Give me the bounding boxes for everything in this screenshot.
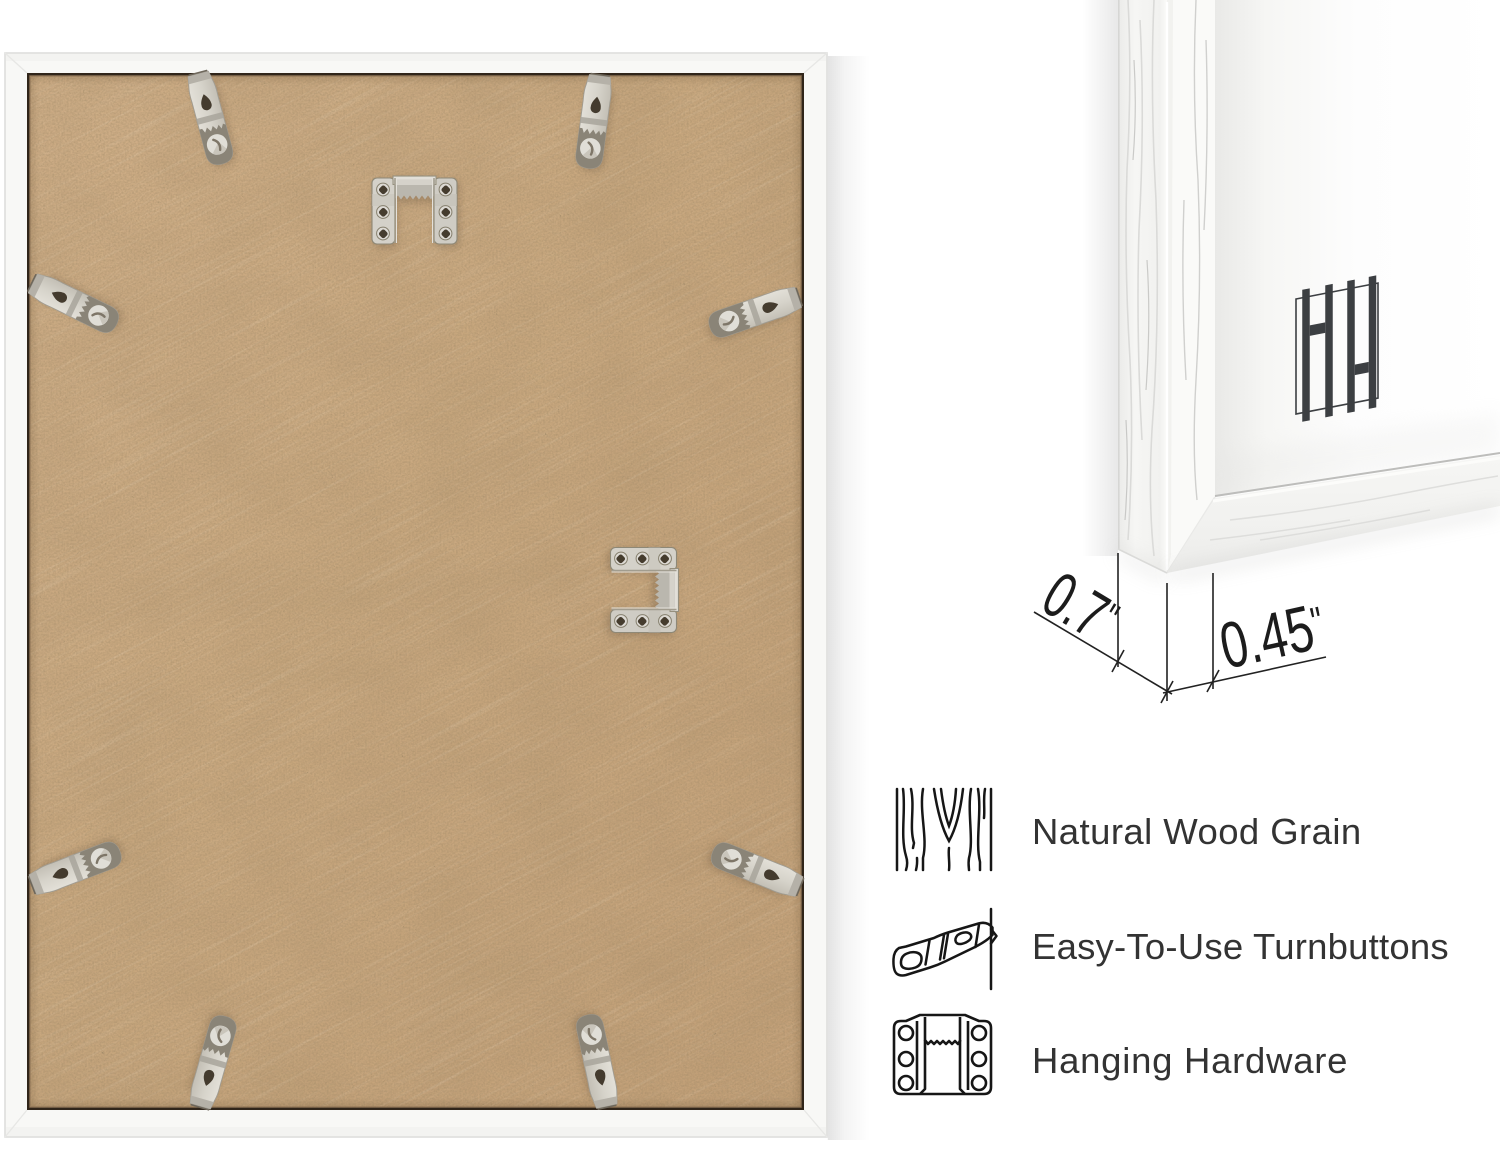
svg-text:Hanging Hardware: Hanging Hardware — [1032, 1040, 1348, 1081]
svg-text:Easy-To-Use Turnbuttons: Easy-To-Use Turnbuttons — [1032, 926, 1449, 967]
svg-text:Natural Wood Grain: Natural Wood Grain — [1032, 811, 1362, 852]
